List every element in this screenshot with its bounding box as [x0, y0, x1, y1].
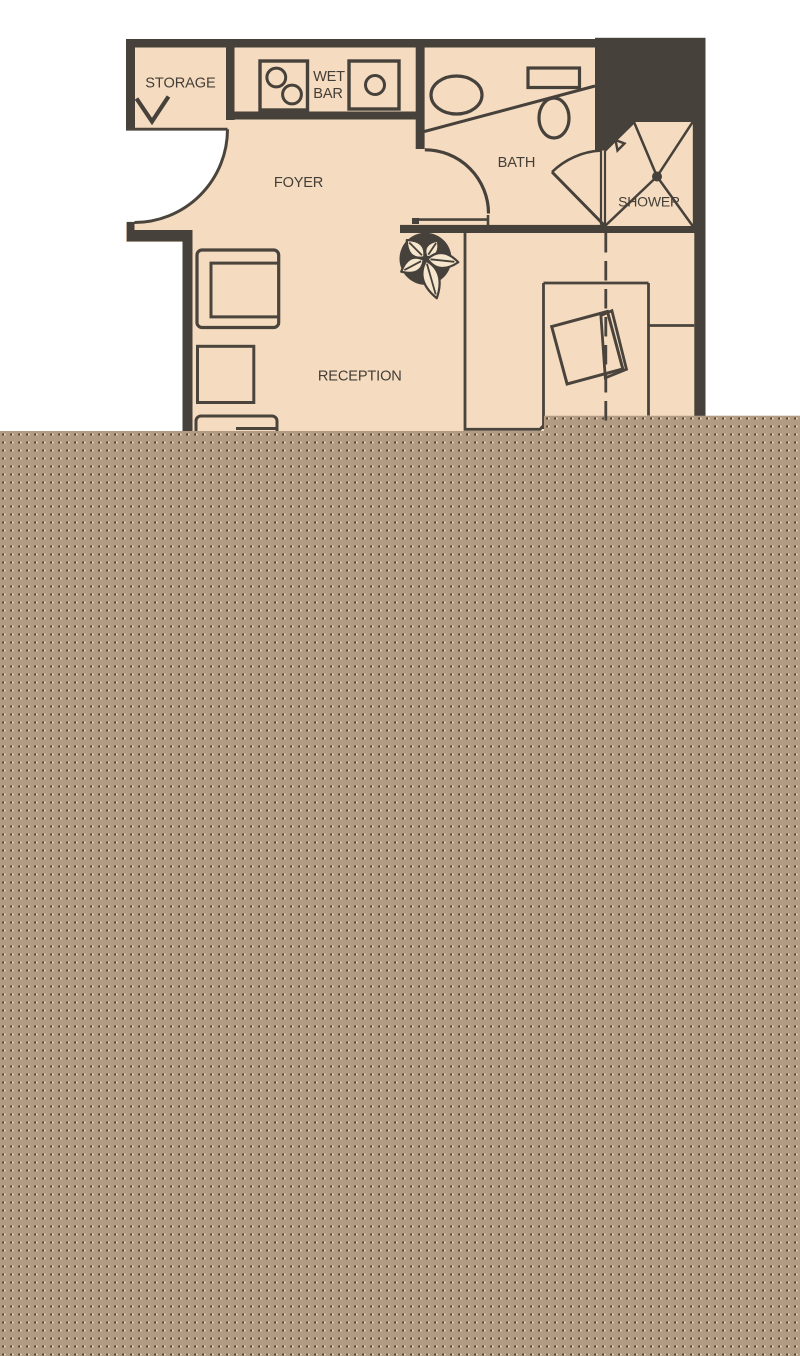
svg-text:WET: WET	[313, 69, 345, 85]
svg-text:BAR: BAR	[313, 86, 342, 102]
svg-text:STORAGE: STORAGE	[145, 76, 216, 92]
svg-text:FOYER: FOYER	[274, 175, 323, 191]
svg-text:RECEPTION: RECEPTION	[318, 369, 402, 385]
svg-text:BATH: BATH	[498, 155, 536, 171]
svg-text:SHOWER: SHOWER	[618, 194, 680, 210]
